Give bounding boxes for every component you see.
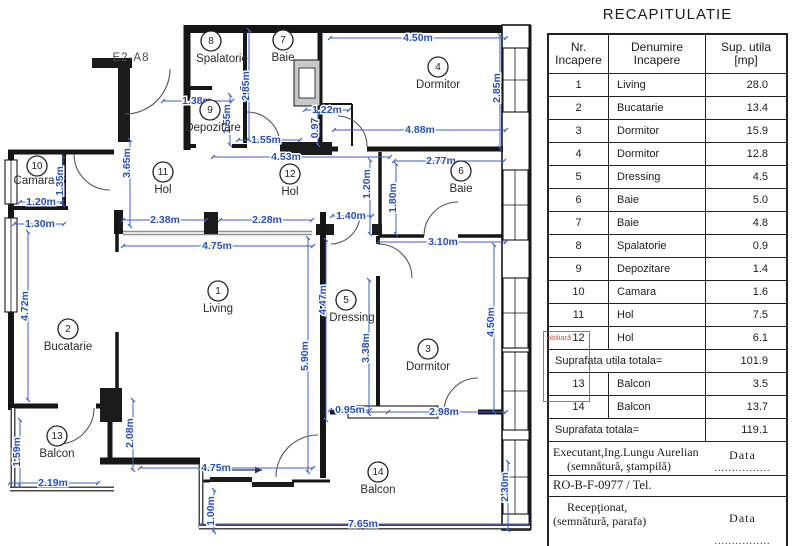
room-name: Hol (154, 184, 171, 196)
room-number: 7 (280, 35, 286, 46)
room-name-cell: Baie (609, 212, 706, 234)
room-number: 1 (215, 286, 221, 297)
room-area-cell: 28.0 (706, 79, 786, 91)
room-name: Baie (271, 52, 294, 64)
dimension-label: 2.85m (240, 71, 252, 101)
header-cell: Nr.Incapere (549, 35, 609, 73)
room-number: 5 (343, 295, 349, 306)
room-area-cell: 4.8 (706, 217, 786, 229)
room-name-cell: Dormitor (609, 143, 706, 165)
dimension-label: 3.10m (428, 236, 458, 248)
table-row: 6Baie5.0 (549, 189, 786, 212)
subtotal-row: Suprafata utila totala= 101.9 (549, 350, 786, 373)
dormitor3-door-arc (378, 244, 412, 278)
table-row: 7Baie4.8 (549, 212, 786, 235)
room-name: Balcon (360, 484, 395, 496)
room-area-cell: 6.1 (706, 332, 786, 344)
entry-door-arc (125, 69, 170, 114)
room-area-cell: 4.5 (706, 171, 786, 183)
table-row: 8Spalatorie0.9 (549, 235, 786, 258)
room-area-cell: 0.9 (706, 240, 786, 252)
room-number-cell: 13 (549, 373, 609, 395)
room-number: 6 (458, 166, 464, 177)
dimension-label: 2.08m (124, 418, 136, 448)
room-number-cell: 1 (549, 74, 609, 96)
room-number: 13 (51, 431, 63, 442)
recap-table: Nr.IncapereDenumireIncapereSup. utila[mp… (547, 33, 788, 546)
dressing-balcony-door-arc (276, 435, 318, 477)
subtotal-label: Suprafata utila totala= (549, 350, 706, 372)
room-number-cell: 6 (549, 189, 609, 211)
window (503, 48, 528, 112)
room-area-cell: 15.9 (706, 125, 786, 137)
room-name: Dressing (329, 312, 374, 324)
pillar (100, 388, 122, 422)
window (503, 170, 528, 240)
table-row: 13Balcon3.5 (549, 373, 786, 396)
room-name-cell: Dormitor (609, 120, 706, 142)
room-number-cell: 14 (549, 396, 609, 418)
room-name: Dormitor (416, 79, 460, 91)
dimension-label: 4.72m (19, 291, 31, 321)
signature-dots: ................ (699, 526, 786, 546)
dimension-label: 5.90m (299, 341, 311, 371)
dimension-label: 1.20m (26, 196, 56, 208)
room-number: 8 (208, 36, 214, 47)
room-area-cell: 1.6 (706, 286, 786, 298)
dimension-label: 0.97 (309, 118, 321, 139)
room-number-cell: 5 (549, 166, 609, 188)
room-number-cell: 8 (549, 235, 609, 257)
license-line: RO-B-F-0977 / Tel. (549, 476, 786, 497)
room-name: Camara (14, 175, 56, 187)
room-number: 14 (372, 467, 384, 478)
executant-line1: Executant,Ing.Lungu Aurelian (553, 445, 699, 459)
table-row: 9Depozitare1.4 (549, 258, 786, 281)
window (5, 218, 17, 312)
room-name: Dormitor (406, 361, 450, 373)
room-name: Living (203, 303, 233, 315)
room-number-cell: 11 (549, 304, 609, 326)
room-name-cell: Dressing (609, 166, 706, 188)
subtotal-value: 101.9 (706, 355, 786, 367)
data-label: Data (699, 448, 786, 463)
room-number: 10 (31, 161, 43, 172)
table-row: 2Bucatarie13.4 (549, 97, 786, 120)
room-number-cell: 4 (549, 143, 609, 165)
room-name: Bucatarie (44, 341, 93, 353)
dimension-label: 2.30m (499, 472, 511, 502)
room-area-cell: 12.8 (706, 148, 786, 160)
dimension-label: 2.19m (38, 477, 68, 489)
receptionat-line2: (semnătură, parafa) (553, 514, 699, 528)
room-number: 2 (65, 324, 71, 335)
total-value: 119.1 (706, 424, 786, 436)
window (503, 352, 528, 430)
dimension-label: 1.40m (336, 210, 366, 222)
recap-table-body: 1Living28.02Bucatarie13.43Dormitor15.94D… (549, 74, 786, 350)
dimension-label: 4.75m (202, 240, 232, 252)
room-name-cell: Hol (609, 304, 706, 326)
header-cell: Sup. utila[mp] (706, 35, 786, 73)
room-name-cell: Balcon (609, 396, 706, 418)
room-number-cell: 7 (549, 212, 609, 234)
room-number-cell: 2 (549, 97, 609, 119)
dimension-label: 4.47m (317, 285, 329, 315)
balcony-rows: 13Balcon3.514Balcon13.7 (549, 373, 786, 419)
dimension-label: 4.75m (201, 462, 231, 474)
room-number: 9 (207, 105, 213, 116)
dimension-label: 1.59m (11, 437, 23, 467)
dimension-label: 3.38m (360, 333, 372, 363)
dimension-label: 2.98m (429, 406, 459, 418)
recap-title: RECAPITULATIE (547, 6, 788, 23)
table-row: 11Hol7.5 (549, 304, 786, 327)
room-name-cell: Spalatorie (609, 235, 706, 257)
pillar (204, 212, 218, 234)
baie6-door-arc (424, 202, 458, 236)
table-row: 4Dormitor12.8 (549, 143, 786, 166)
room-number: 11 (158, 167, 169, 178)
hall-door-arc (74, 154, 110, 190)
room-name-cell: Balcon (609, 373, 706, 395)
room-number: 4 (435, 62, 441, 73)
dimension-label: 4.50m (403, 32, 433, 44)
floor-plan: 4.50m1.38m1.55m4.53m1.22m4.88m2.77m3.10m… (0, 0, 545, 546)
room-name-cell: Bucatarie (609, 97, 706, 119)
executant-line2: (semnătură, ştampilă) (553, 459, 699, 473)
table-row: 5Dressing4.5 (549, 166, 786, 189)
signature-dots: ................ (699, 463, 786, 474)
room-name-cell: Baie (609, 189, 706, 211)
executant-block: Executant,Ing.Lungu Aurelian (semnătură,… (549, 442, 786, 476)
dimension-layer: 4.50m1.38m1.55m4.53m1.22m4.88m2.77m3.10m… (10, 30, 528, 532)
room-area-cell: 13.4 (706, 102, 786, 114)
room-name: Balcon (39, 448, 74, 460)
data-label: Data (699, 511, 786, 526)
receptionat-line1: Recepţionat, (553, 500, 699, 514)
table-row: 14Balcon13.7 (549, 396, 786, 419)
header-cell: DenumireIncapere (609, 35, 706, 73)
total-row: Suprafata totala= 119.1 (549, 419, 786, 442)
unit-code-label: E2-A8 (113, 52, 150, 64)
dimension-label: 1.00m (205, 496, 217, 526)
dimension-label: 2.38m (150, 214, 180, 226)
total-label: Suprafata totala= (549, 419, 706, 441)
table-row: 1Living28.0 (549, 74, 786, 97)
room-name-cell: Camara (609, 281, 706, 303)
dimension-label: 2.28m (252, 214, 282, 226)
window (503, 278, 528, 348)
dimension-label: 4.53m (271, 151, 301, 163)
dimension-label: 4.50m (485, 307, 497, 337)
room-name: Hol (281, 186, 298, 198)
room-area-cell: 3.5 (706, 378, 786, 390)
room-number-cell: 12 (549, 327, 609, 349)
dimension-label: 1.35m (54, 166, 66, 196)
table-row: 3Dormitor15.9 (549, 120, 786, 143)
room-number-cell: 10 (549, 281, 609, 303)
dimension-label: 1.30m (25, 218, 55, 230)
room-name: Spalatorie (196, 53, 248, 65)
room-name: Depozitare (185, 122, 241, 134)
dimension-label: 0.95m (335, 404, 365, 416)
room-name-cell: Depozitare (609, 258, 706, 280)
dimension-label: 2.77m (426, 155, 456, 167)
room-area-cell: 13.7 (706, 401, 786, 413)
room-area-cell: 1.4 (706, 263, 786, 275)
dimension-label: 4.88m (405, 124, 435, 136)
dimension-label: 3.65m (121, 148, 133, 178)
dimension-label: 7.65m (348, 518, 378, 530)
exterior-walls (8, 25, 531, 530)
dimension-label: 2.85m (491, 73, 503, 103)
room-name: Baie (449, 183, 472, 195)
dimension-label: 1.20m (361, 169, 373, 199)
recap-table-header: Nr.IncapereDenumireIncapereSup. utila[mp… (549, 35, 786, 74)
room-name-cell: Hol (609, 327, 706, 349)
dimension-label: 1.80m (387, 183, 399, 213)
scanned-floor-plan-sheet: 4.50m1.38m1.55m4.53m1.22m4.88m2.77m3.10m… (0, 0, 800, 546)
receptionat-block: Recepţionat, (semnătură, parafa) Data ..… (549, 497, 786, 546)
room-area-cell: 5.0 (706, 194, 786, 206)
room-name-cell: Living (609, 74, 706, 96)
dimension-label: 1.55m (251, 134, 281, 146)
room-number: 3 (425, 344, 431, 355)
room-number-cell: 3 (549, 120, 609, 142)
room-number: 12 (284, 169, 296, 180)
dimension-label: 1.22m (312, 104, 342, 116)
table-row: 10Camara1.6 (549, 281, 786, 304)
room-area-cell: 7.5 (706, 309, 786, 321)
room-number-cell: 9 (549, 258, 609, 280)
table-row: 12Hol6.1 (549, 327, 786, 350)
